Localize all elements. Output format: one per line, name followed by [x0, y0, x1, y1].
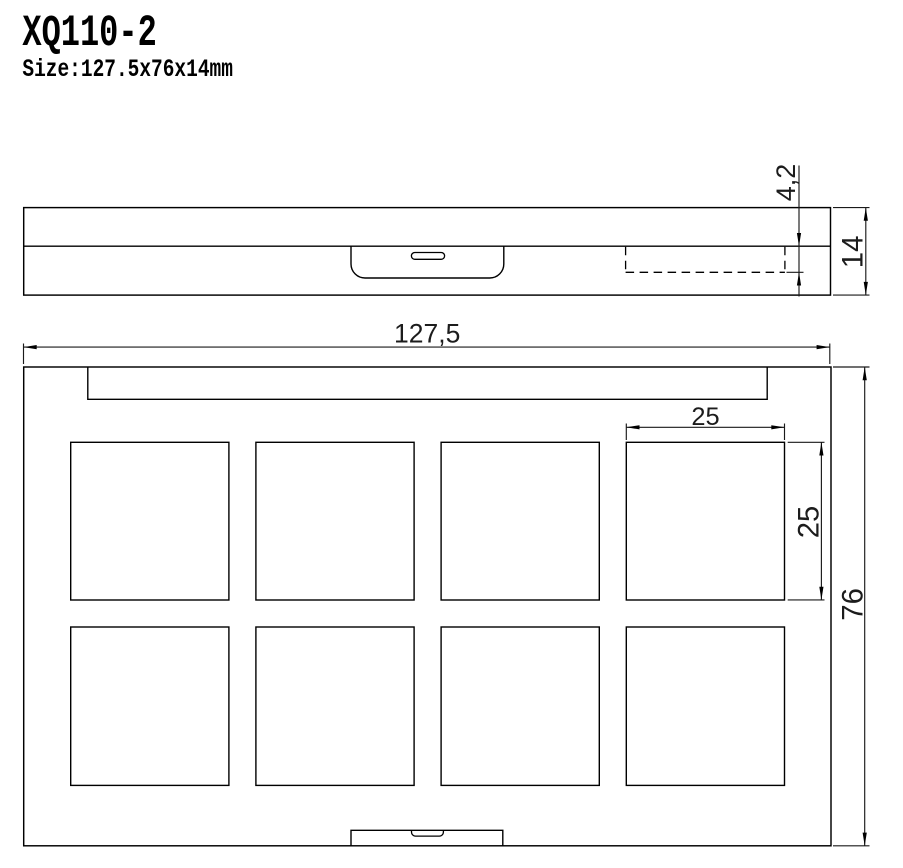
svg-text:25: 25	[793, 506, 825, 538]
svg-text:Size:127.5x76x14mm: Size:127.5x76x14mm	[22, 55, 233, 84]
svg-text:25: 25	[691, 403, 719, 431]
svg-text:14: 14	[837, 236, 870, 269]
svg-text:4,2: 4,2	[771, 164, 801, 202]
svg-text:XQ110-2: XQ110-2	[22, 8, 156, 59]
svg-text:76: 76	[837, 588, 870, 621]
svg-text:127,5: 127,5	[394, 318, 460, 348]
